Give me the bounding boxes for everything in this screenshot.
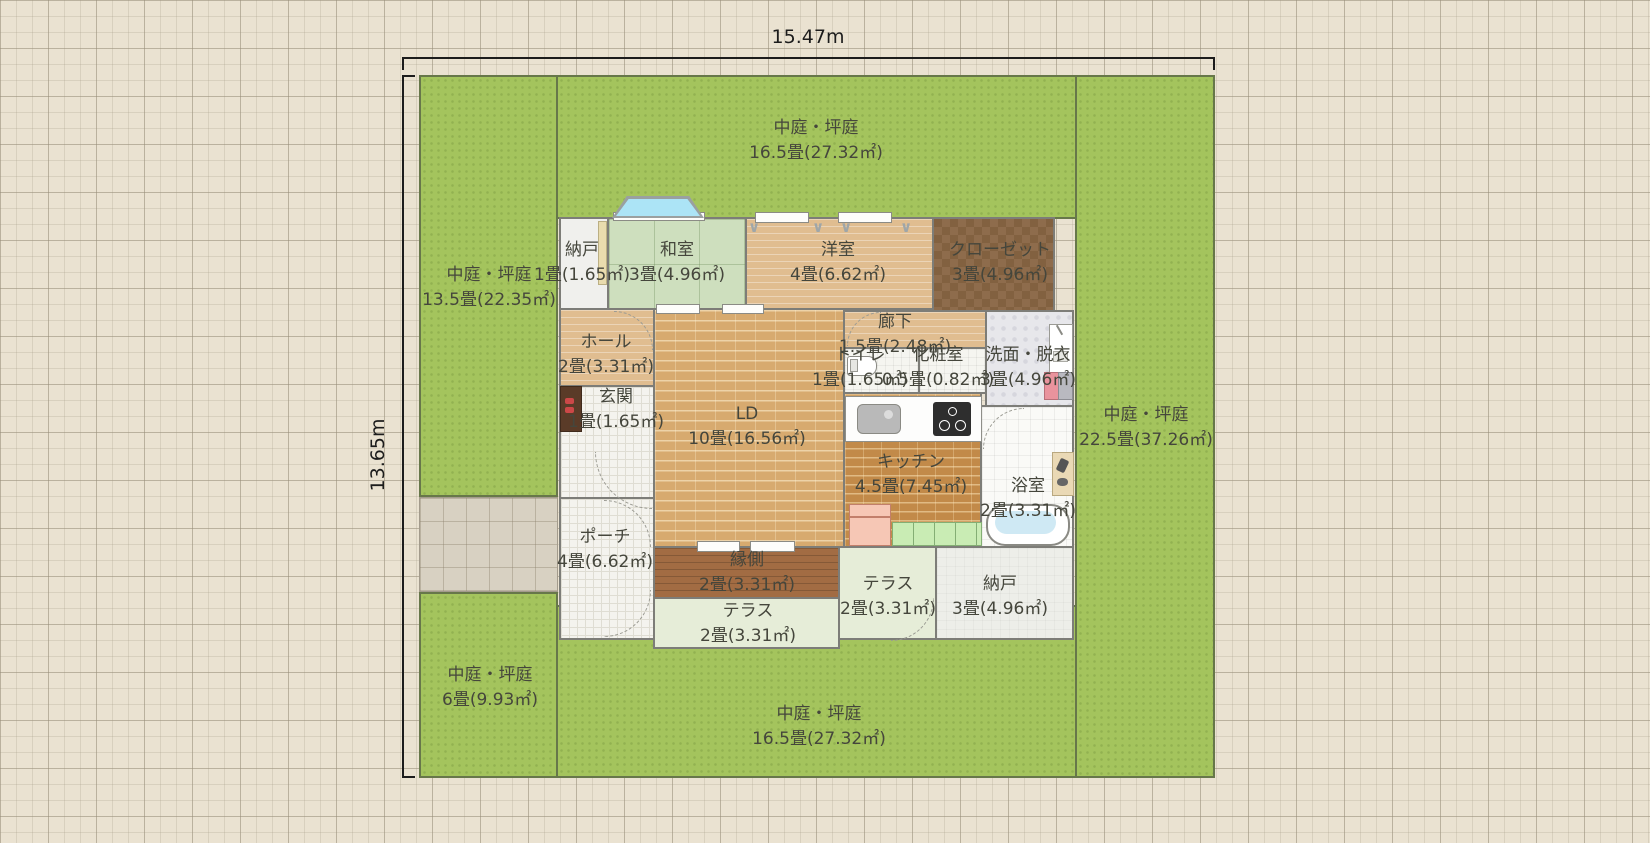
driveway-approach[interactable] xyxy=(419,497,558,592)
label-kitchen: キッチン4.5畳(7.45㎡) xyxy=(855,450,967,500)
dimension-tick xyxy=(402,776,415,778)
label-porch: ポーチ4畳(6.62㎡) xyxy=(557,525,653,575)
dimension-tick xyxy=(402,75,415,77)
floorplan-canvas: ∨ ∨ ∨ ∨ 1 xyxy=(0,0,1650,843)
label-garden-bottom-left: 中庭・坪庭6畳(9.93㎡) xyxy=(442,663,538,713)
dimension-tick xyxy=(402,57,404,70)
label-western-room: 洋室4畳(6.62㎡) xyxy=(790,238,886,288)
window-washitsu-south-1 xyxy=(656,304,700,314)
label-storage-1: 納戸1畳(1.65㎡) xyxy=(534,238,630,288)
label-closet: クローゼット3畳(4.96㎡) xyxy=(949,238,1051,288)
dimension-height-label: 13.65m xyxy=(367,419,389,492)
dimension-width-label: 15.47m xyxy=(772,26,845,48)
label-bathroom: 浴室2畳(3.31㎡) xyxy=(980,474,1076,524)
label-garden-bottom: 中庭・坪庭16.5畳(27.32㎡) xyxy=(752,702,886,752)
closet-hanger-icon: ∨ xyxy=(748,218,760,236)
label-terrace-right: テラス2畳(3.31㎡) xyxy=(840,572,936,622)
label-garden-top: 中庭・坪庭16.5畳(27.32㎡) xyxy=(749,116,883,166)
window-yoshitsu-1 xyxy=(755,212,809,223)
stove-cooktop xyxy=(933,402,971,436)
label-japanese-room: 和室3畳(4.96㎡) xyxy=(629,238,725,288)
label-garden-right: 中庭・坪庭22.5畳(37.26㎡) xyxy=(1079,403,1213,453)
refrigerator[interactable] xyxy=(849,504,891,546)
window-washitsu-south-2 xyxy=(722,304,764,314)
label-entrance: 玄関1畳(1.65㎡) xyxy=(568,385,664,435)
kitchen-cabinet[interactable] xyxy=(892,522,982,546)
closet-hanger-icon: ∨ xyxy=(840,218,852,236)
bay-window[interactable] xyxy=(612,196,704,218)
label-washroom: 洗面・脱衣3畳(4.96㎡) xyxy=(980,343,1076,393)
label-terrace-center: テラス2畳(3.31㎡) xyxy=(700,599,796,649)
bay-window-glass xyxy=(616,199,700,216)
label-storage-2: 納戸3畳(4.96㎡) xyxy=(952,572,1048,622)
closet-hanger-icon: ∨ xyxy=(900,218,912,236)
dimension-tick xyxy=(1213,57,1215,70)
label-living-dining: LD10畳(16.56㎡) xyxy=(688,402,806,452)
closet-hanger-icon: ∨ xyxy=(812,218,824,236)
dimension-line-horizontal xyxy=(402,57,1215,59)
label-hall: ホール2畳(3.31㎡) xyxy=(558,330,654,380)
kitchen-sink xyxy=(857,404,901,434)
label-powder-room: 化粧室0.5畳(0.82㎡) xyxy=(882,343,994,393)
dimension-line-vertical xyxy=(402,75,404,778)
label-veranda: 縁側2畳(3.31㎡) xyxy=(699,548,795,598)
